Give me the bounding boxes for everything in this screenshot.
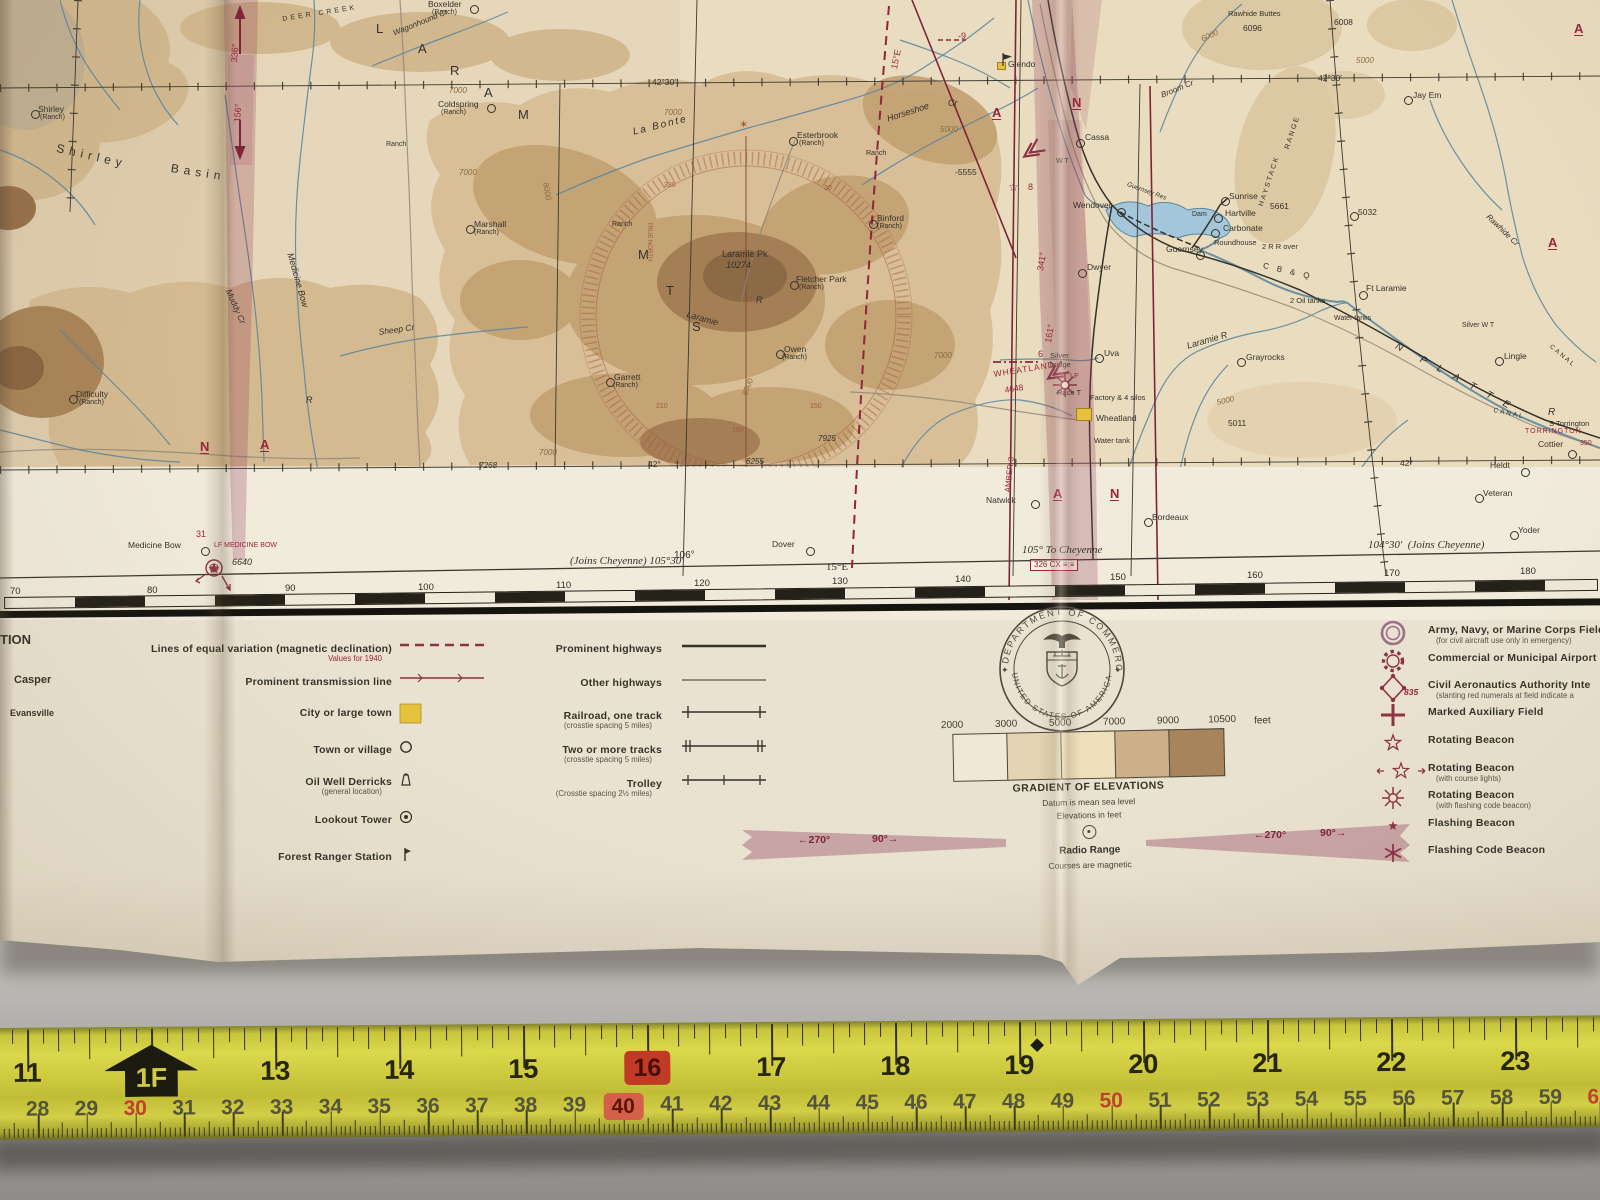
tape-inch-number: 22	[1365, 1047, 1417, 1078]
tape-mm-tick	[1043, 1121, 1044, 1130]
tape-mm-tick	[1082, 1120, 1083, 1129]
tape-mm-tick	[1072, 1121, 1073, 1130]
tape-mm-tick	[321, 1126, 322, 1135]
tape-mm-tick	[643, 1124, 644, 1133]
tape-inch-tick	[353, 1027, 354, 1041]
tape-mm-tick	[223, 1127, 224, 1136]
tape-mm-tick	[853, 1122, 854, 1131]
tape-inch-tick	[1050, 1022, 1051, 1044]
tape-inch-number: 23	[1489, 1046, 1541, 1077]
tape-mm-tick	[360, 1126, 361, 1135]
elevation-gradient: feet GRADIENT OF ELEVATIONS Datum is mea…	[946, 712, 1319, 890]
tape-mm-tick	[1580, 1117, 1581, 1126]
tape-mm-tick	[902, 1122, 903, 1131]
tape-mm-tick	[1126, 1120, 1127, 1129]
tape-inch-tick	[1437, 1019, 1438, 1033]
tape-mm-tick	[862, 1122, 863, 1131]
tape-mm-tick	[492, 1125, 493, 1134]
tape-mm-tick	[814, 1123, 815, 1132]
legend-sublabel: Values for 1940	[328, 654, 382, 663]
gradient-elevations: Elevations in feet	[948, 807, 1230, 823]
tape-mm-tick	[209, 1121, 210, 1136]
tape-mm-tick	[326, 1126, 327, 1135]
tape-inch-number: 14	[373, 1055, 425, 1086]
tape-mm-tick	[1350, 1118, 1351, 1127]
tape-cm-number: 49	[1042, 1089, 1082, 1113]
tape-mm-tick	[1150, 1120, 1151, 1129]
tape-inch-tick	[322, 1027, 323, 1041]
tape-inch-tick	[631, 1025, 632, 1039]
legend-icon-thin-line	[680, 672, 768, 690]
tape-mm-tick	[609, 1124, 610, 1133]
tape-inch-tick	[198, 1028, 199, 1042]
legend-sublabel: (slanting red numerals at field indicate…	[1436, 691, 1574, 700]
legend-icon-plus	[1376, 700, 1410, 735]
tape-inch-tick	[1313, 1020, 1314, 1034]
tape-mm-tick	[340, 1126, 341, 1135]
gradient-unit: feet	[1254, 715, 1271, 726]
gradient-tick-label: 9000	[1148, 715, 1188, 727]
tape-mm-tick	[1560, 1117, 1561, 1126]
tape-inch-tick	[1236, 1020, 1237, 1042]
tape-mm-tick	[667, 1124, 668, 1133]
tape-mm-tick	[1370, 1118, 1371, 1127]
tape-inch-tick	[1003, 1022, 1004, 1036]
legend-label: Lines of equal variation (magnetic decli…	[151, 643, 392, 655]
tape-measure: 111F131415161718192021222327282930313233…	[0, 1015, 1600, 1140]
legend-sublabel: (crosstie spacing 5 miles)	[564, 755, 652, 764]
tape-inch-tick	[167, 1029, 168, 1043]
tape-mm-tick	[287, 1127, 288, 1136]
radio-range-bands	[730, 815, 1430, 875]
tape-mm-tick	[1341, 1118, 1342, 1127]
tape-mm-tick	[1346, 1118, 1347, 1127]
legend-label: Lookout Tower	[315, 814, 392, 826]
tape-mm-tick	[1526, 1111, 1527, 1126]
tape-inch-tick	[1282, 1020, 1283, 1034]
tape-inch-tick	[368, 1027, 369, 1049]
legend-label: Rotating Beacon	[1428, 789, 1514, 801]
radio-270-left: ←270°	[798, 834, 830, 846]
tape-mm-tick	[1438, 1118, 1439, 1127]
tape-mm-tick	[1336, 1118, 1337, 1127]
tape-mm-tick	[794, 1117, 795, 1132]
tape-cm-number: 45	[847, 1091, 887, 1115]
tape-mm-tick	[57, 1128, 58, 1137]
tape-mm-tick	[443, 1125, 444, 1134]
tape-mm-tick	[1477, 1111, 1478, 1126]
tape-inch-tick	[337, 1027, 338, 1057]
tape-mm-tick	[1033, 1121, 1034, 1130]
tape-mm-tick	[1224, 1119, 1225, 1128]
tape-cm-number: 40	[603, 1093, 643, 1120]
tape-mm-tick	[1472, 1117, 1473, 1126]
radio-90-right: 90°→	[1320, 827, 1346, 839]
tape-mm-tick	[126, 1128, 127, 1137]
tape-mm-tick	[687, 1124, 688, 1133]
tape-mm-tick	[994, 1121, 995, 1130]
tape-mm-tick	[833, 1122, 834, 1131]
tape-mm-tick	[1136, 1114, 1137, 1129]
tape-mm-tick	[409, 1126, 410, 1135]
tape-mm-tick	[570, 1124, 571, 1133]
tape-mm-tick	[370, 1126, 371, 1135]
tape-inch-tick	[430, 1027, 431, 1049]
eagle-icon	[1043, 634, 1081, 648]
tape-mm-tick	[1253, 1119, 1254, 1128]
tape-mm-tick	[711, 1123, 712, 1132]
tape-mm-tick	[438, 1126, 439, 1135]
tape-mm-tick	[511, 1125, 512, 1134]
tape-mm-tick	[706, 1123, 707, 1132]
tape-mm-tick	[375, 1126, 376, 1135]
tape-mm-tick	[560, 1125, 561, 1134]
legend-label: Trolley	[627, 778, 662, 790]
tape-inch-tick	[461, 1026, 462, 1056]
tape-mm-tick	[765, 1123, 766, 1132]
tape-inch-tick	[569, 1025, 570, 1039]
tape-mm-tick	[253, 1127, 254, 1136]
tape-inch-tick	[988, 1022, 989, 1044]
tape-mm-tick	[404, 1120, 405, 1135]
tape-cm-number: 39	[554, 1093, 594, 1117]
tape-cm-number: 55	[1335, 1087, 1375, 1111]
tape-mm-tick	[350, 1126, 351, 1135]
tape-mm-tick	[638, 1124, 639, 1133]
tape-mm-tick	[248, 1127, 249, 1136]
tape-mm-tick	[838, 1122, 839, 1131]
tape-mm-tick	[750, 1123, 751, 1132]
tape-mm-tick	[1204, 1119, 1205, 1128]
tape-mm-tick	[1199, 1120, 1200, 1129]
tape-mm-tick	[975, 1121, 976, 1130]
tape-mm-tick	[13, 1123, 14, 1138]
tape-inch-tick	[585, 1025, 586, 1055]
legend-heading-partial: TION	[0, 632, 31, 647]
tape-mm-tick	[745, 1117, 746, 1132]
tape-mm-tick	[921, 1122, 922, 1131]
tape-mm-tick	[204, 1127, 205, 1136]
tape-mm-tick	[106, 1128, 107, 1137]
tape-inch-tick	[1360, 1019, 1361, 1041]
tape-mm-tick	[1263, 1119, 1264, 1128]
tape-mm-tick	[843, 1116, 844, 1131]
tape-inch-tick	[384, 1027, 385, 1041]
tape-mm-tick	[1106, 1120, 1107, 1129]
tape-mm-tick	[365, 1126, 366, 1135]
tape-mm-tick	[1116, 1120, 1117, 1129]
tape-mm-tick	[472, 1125, 473, 1134]
tape-cm-number: 46	[896, 1091, 936, 1115]
tape-mm-tick	[1570, 1117, 1571, 1126]
legend-label: Commercial or Municipal Airport	[1428, 652, 1597, 664]
tape-mm-tick	[1390, 1118, 1391, 1127]
tape-mm-tick	[682, 1124, 683, 1133]
tape-mm-tick	[579, 1124, 580, 1133]
tape-inch-tick	[1546, 1018, 1547, 1040]
tape-mm-tick	[394, 1126, 395, 1135]
tape-inch-tick	[554, 1026, 555, 1048]
tape-mm-tick	[272, 1127, 273, 1136]
tape-mm-tick	[760, 1123, 761, 1132]
tape-inch-tick	[446, 1026, 447, 1040]
tape-mm-tick	[121, 1128, 122, 1137]
tape-mm-tick	[1419, 1118, 1420, 1127]
tape-mm-tick	[1097, 1120, 1098, 1129]
tape-mm-tick	[160, 1122, 161, 1137]
tape-mm-tick	[62, 1122, 63, 1137]
tape-cm-number: 38	[506, 1094, 546, 1118]
tape-mm-tick	[1507, 1117, 1508, 1126]
tape-mm-tick	[277, 1127, 278, 1136]
tape-mm-tick	[731, 1123, 732, 1132]
tape-inch-tick	[1096, 1021, 1097, 1035]
tape-diamond-mark: ◆	[1030, 1034, 1044, 1055]
tape-mm-tick	[1487, 1117, 1488, 1126]
tape-mm-tick	[775, 1123, 776, 1132]
map-sheet: Medicine Bow31LF MEDICINE BOW6640106°(Jo…	[0, 0, 1600, 990]
legend-icon-ranger-station	[398, 846, 414, 869]
tape-mm-tick	[306, 1121, 307, 1136]
tape-inch-tick	[1422, 1019, 1423, 1041]
tape-inch-tick	[833, 1023, 834, 1053]
tape-mm-tick	[1409, 1118, 1410, 1127]
legend-note: 835	[1404, 687, 1418, 697]
legend-icon-dashed-red-line	[398, 638, 486, 656]
tape-mm-tick	[1219, 1119, 1220, 1128]
tape-mm-tick	[1302, 1119, 1303, 1128]
tape-mm-tick	[150, 1128, 151, 1137]
tape-inch-tick	[1251, 1020, 1252, 1034]
legend-label: Other highways	[580, 677, 662, 689]
tape-mm-tick	[1433, 1118, 1434, 1127]
tape-mm-tick	[1175, 1120, 1176, 1129]
tape-mm-tick	[1585, 1117, 1586, 1126]
tape-mm-tick	[1248, 1119, 1249, 1128]
tape-inch-tick	[105, 1029, 106, 1043]
tape-mm-tick	[389, 1126, 390, 1135]
tape-mm-tick	[633, 1124, 634, 1133]
gradient-tick-label: 2000	[932, 719, 972, 731]
tape-cm-number: 37	[457, 1094, 497, 1118]
tape-mm-tick	[23, 1129, 24, 1138]
tape-mm-tick	[848, 1122, 849, 1131]
tape-inch-tick	[1158, 1021, 1159, 1035]
tape-mm-tick	[1067, 1121, 1068, 1130]
tape-inch-tick	[1329, 1020, 1330, 1050]
tape-inch-tick	[662, 1025, 663, 1039]
tape-cm-number: 53	[1238, 1088, 1278, 1112]
tape-inch-tick	[182, 1029, 183, 1051]
tape-mm-tick	[789, 1123, 790, 1132]
gradient-swatch	[952, 733, 1009, 782]
tape-inch-tick	[1189, 1021, 1190, 1035]
tape-mm-tick	[950, 1121, 951, 1130]
tape-cm-number: 36	[408, 1094, 448, 1118]
tape-mm-tick	[1180, 1120, 1181, 1129]
tape-inch-tick	[941, 1023, 942, 1037]
tape-mm-tick	[1058, 1121, 1059, 1130]
photo-scene: Medicine Bow31LF MEDICINE BOW6640106°(Jo…	[0, 0, 1600, 1200]
tape-cm-number: 31	[164, 1096, 204, 1120]
tape-mm-tick	[1482, 1117, 1483, 1126]
tape-inch-tick	[1298, 1020, 1299, 1042]
tape-mm-tick	[545, 1125, 546, 1134]
tape-mm-tick	[267, 1127, 268, 1136]
tape-mm-tick	[1521, 1117, 1522, 1126]
tape-mm-tick	[189, 1127, 190, 1136]
tape-mm-tick	[316, 1126, 317, 1135]
tape-mm-tick	[1424, 1118, 1425, 1127]
tape-mm-tick	[501, 1119, 502, 1134]
tape-cm-number: 58	[1482, 1086, 1522, 1110]
tape-mm-tick	[1399, 1118, 1400, 1127]
radio-range-label: Radio Range	[949, 842, 1231, 859]
tape-inch-tick	[1530, 1018, 1531, 1032]
tape-inch-tick	[136, 1029, 137, 1043]
legend-icon-star-burst	[1376, 783, 1410, 818]
tape-inch-tick	[1344, 1019, 1345, 1033]
legend-label: Civil Aeronautics Authority Inte	[1428, 679, 1591, 691]
legend-sublabel: (with course lights)	[1436, 774, 1501, 783]
tape-inch-tick	[306, 1028, 307, 1050]
legend-icon-solid-line	[680, 638, 768, 656]
tape-mm-tick	[199, 1127, 200, 1136]
tape-inch-tick	[1375, 1019, 1376, 1033]
tape-mm-tick	[872, 1122, 873, 1131]
tape-mm-tick	[1531, 1117, 1532, 1126]
legend-label: Town or village	[313, 744, 392, 756]
tape-mm-tick	[784, 1123, 785, 1132]
gradient-swatch	[1006, 732, 1063, 781]
tape-mm-tick	[399, 1126, 400, 1135]
tape-mm-tick	[433, 1126, 434, 1135]
tape-inch-tick	[43, 1030, 44, 1044]
tape-mm-tick	[1243, 1119, 1244, 1128]
tape-mm-tick	[697, 1117, 698, 1132]
tape-mm-tick	[926, 1122, 927, 1131]
tape-inch-tick	[724, 1024, 725, 1038]
tape-mm-tick	[1594, 1116, 1595, 1125]
tape-mm-tick	[228, 1127, 229, 1136]
tape-mm-tick	[1189, 1120, 1190, 1129]
tape-mm-tick	[1311, 1119, 1312, 1128]
tape-mm-tick	[1165, 1120, 1166, 1129]
tape-mm-tick	[1155, 1120, 1156, 1129]
tape-mm-tick	[941, 1116, 942, 1131]
tape-mm-tick	[1233, 1113, 1234, 1128]
tape-inch-number: 15	[497, 1054, 549, 1085]
legend-city-sample: Casper	[14, 674, 51, 686]
tape-mm-tick	[355, 1120, 356, 1135]
gradient-swatch	[1168, 728, 1225, 777]
gradient-tick-label: 5000	[1040, 717, 1080, 729]
tape-inch-tick	[1468, 1018, 1469, 1032]
tape-mm-tick	[1565, 1117, 1566, 1126]
tape-inch-tick	[1205, 1020, 1206, 1050]
tape-mm-tick	[677, 1124, 678, 1133]
tape-mm-tick	[736, 1123, 737, 1132]
legend-label: Rotating Beacon	[1428, 762, 1514, 774]
tape-inch-tick	[1081, 1021, 1082, 1051]
tape-inch-tick	[600, 1025, 601, 1039]
legend-icon-gear-circle	[1376, 646, 1410, 681]
tape-mm-tick	[111, 1122, 112, 1137]
tape-mm-tick	[1375, 1118, 1376, 1127]
tape-cm-number: 60	[1579, 1085, 1600, 1109]
tape-cm-number: 54	[1286, 1088, 1326, 1112]
tape-cm-number: 44	[798, 1091, 838, 1115]
tape-mm-tick	[516, 1125, 517, 1134]
tape-mm-tick	[1048, 1121, 1049, 1130]
tape-mm-tick	[453, 1119, 454, 1134]
tape-mm-tick	[140, 1128, 141, 1137]
tape-mm-tick	[1282, 1113, 1283, 1128]
tape-mm-tick	[716, 1123, 717, 1132]
tape-mm-tick	[911, 1122, 912, 1131]
tape-inch-tick	[260, 1028, 261, 1042]
legend-icon-trolley	[680, 773, 768, 792]
tape-mm-tick	[72, 1128, 73, 1137]
tape-mm-tick	[96, 1128, 97, 1137]
tape-mm-tick	[1297, 1119, 1298, 1128]
tape-inch-number: 11	[1, 1058, 53, 1089]
tape-inch-tick	[678, 1025, 679, 1047]
tape-inch-number: 18	[869, 1051, 921, 1082]
tape-inch-tick	[538, 1026, 539, 1040]
legend-icon-open-star	[1376, 728, 1410, 763]
tape-mm-tick	[1185, 1114, 1186, 1129]
legend-sublabel: (Crosstie spacing 2½ miles)	[556, 789, 652, 798]
tape-mm-tick	[48, 1129, 49, 1138]
tape-mm-tick	[131, 1128, 132, 1137]
legend-icon-transmission-line	[398, 671, 486, 689]
tape-mm-tick	[980, 1121, 981, 1130]
anchor-icon	[1056, 664, 1068, 678]
tape-inch-number: 13	[249, 1056, 301, 1087]
tape-mm-tick	[1028, 1121, 1029, 1130]
tape-mm-tick	[1590, 1116, 1591, 1125]
tape-mm-tick	[882, 1122, 883, 1131]
tape-mm-tick	[384, 1126, 385, 1135]
tape-inch-tick	[1406, 1019, 1407, 1033]
tape-mm-tick	[887, 1122, 888, 1131]
tape-mm-tick	[970, 1121, 971, 1130]
tape-mm-tick	[165, 1128, 166, 1137]
tape-cm-number: 33	[262, 1096, 302, 1120]
gradient-tick-label: 3000	[986, 718, 1026, 730]
tape-mm-tick	[1019, 1121, 1020, 1130]
tape-mm-tick	[1463, 1117, 1464, 1126]
tape-mm-tick	[170, 1128, 171, 1137]
tape-inch-tick	[492, 1026, 493, 1048]
tape-mm-tick	[91, 1128, 92, 1137]
tape-mm-tick	[931, 1122, 932, 1131]
tape-mm-tick	[804, 1123, 805, 1132]
tape-inch-tick	[879, 1023, 880, 1037]
tape-mm-tick	[311, 1127, 312, 1136]
tape-inch-tick	[74, 1029, 75, 1043]
radio-range-station-icon	[1082, 825, 1096, 839]
tape-mm-tick	[1024, 1121, 1025, 1130]
legend-sublabel: (crosstie spacing 5 miles)	[564, 721, 652, 730]
legend-label: Oil Well Derricks	[305, 776, 392, 788]
tape-mm-tick	[482, 1125, 483, 1134]
tape-cm-number: 42	[701, 1092, 741, 1116]
map-art	[0, 0, 1600, 620]
tape-inch-tick	[1484, 1018, 1485, 1040]
tape-mm-tick	[448, 1125, 449, 1134]
